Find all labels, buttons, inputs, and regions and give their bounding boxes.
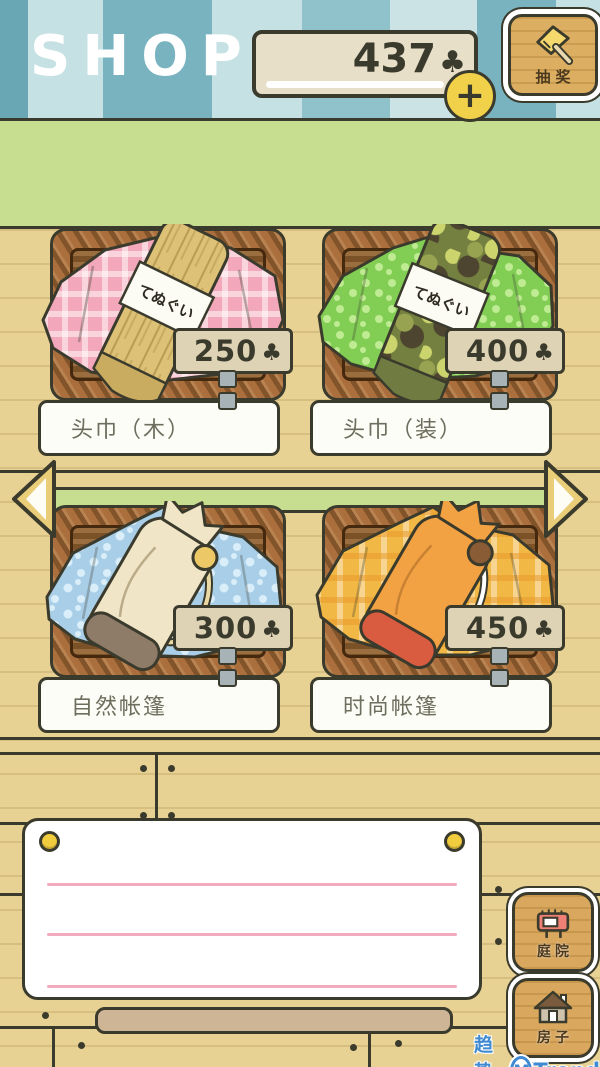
- clover-icon: ♣: [533, 342, 554, 365]
- nail-dot: [78, 1042, 85, 1049]
- watermark-site-text: 趋势网: [474, 1030, 509, 1067]
- lottery-label: 抽奖: [530, 66, 575, 87]
- nail-dot: [168, 765, 175, 772]
- watermark-brand-text: Trend: [533, 1059, 600, 1067]
- price-value: 450: [466, 614, 530, 643]
- item-name-label: 头巾（装）: [310, 400, 552, 456]
- clover-icon: ♣: [261, 619, 282, 642]
- balance-value: 437: [353, 37, 437, 81]
- price-value: 250: [194, 337, 258, 366]
- shop-item-towel-wood[interactable]: てぬぐい 250 ♣ 头巾（木）: [38, 224, 294, 456]
- mallet-icon: [529, 23, 577, 65]
- price-value: 300: [194, 614, 258, 643]
- basket: [322, 228, 558, 401]
- tag-connector: [490, 370, 509, 410]
- tag-connector: [218, 647, 237, 687]
- shop-item-natural-tent[interactable]: 300 ♣ 自然帐篷: [38, 501, 294, 733]
- plank-strip: [95, 1007, 453, 1034]
- item-name-label: 时尚帐篷: [310, 677, 552, 733]
- note-rule-line: [47, 883, 457, 886]
- lottery-button[interactable]: 抽奖: [508, 14, 598, 96]
- connector-link: [490, 669, 509, 687]
- note-rule-line: [47, 933, 457, 936]
- connector-link: [218, 370, 237, 388]
- pin-icon: [444, 831, 465, 852]
- connector-link: [218, 647, 237, 665]
- price-tag: 400 ♣: [445, 328, 565, 374]
- connector-link: [218, 669, 237, 687]
- courtyard-label: 庭院: [533, 941, 573, 961]
- balance-underline: [266, 81, 444, 88]
- shelf-edge-line: [0, 470, 600, 473]
- price-tag: 300 ♣: [173, 605, 293, 651]
- nail-dot: [140, 765, 147, 772]
- mailbox-icon: [533, 904, 573, 940]
- connector-link: [490, 370, 509, 388]
- pin-icon: [39, 831, 60, 852]
- site-watermark: 趋势网 M Trend: [474, 1030, 600, 1067]
- clover-icon: ♣: [533, 619, 554, 642]
- shop-screen: SHOP 437 ♣ + 抽奖: [0, 0, 600, 1067]
- shop-item-towel-camo[interactable]: てぬぐい 400 ♣ 头巾（装）: [310, 224, 566, 456]
- connector-link: [490, 392, 509, 410]
- connector-link: [218, 392, 237, 410]
- tag-connector: [218, 370, 237, 410]
- basket: [50, 228, 286, 401]
- watermark-logo: M: [510, 1056, 532, 1067]
- note-rule-line: [47, 985, 457, 988]
- nail-dot: [350, 1044, 357, 1051]
- add-clover-button[interactable]: +: [444, 70, 496, 122]
- price-tag: 250 ♣: [173, 328, 293, 374]
- plank-seam: [52, 1028, 55, 1067]
- item-name-label: 自然帐篷: [38, 677, 280, 733]
- plank-seam: [155, 752, 158, 822]
- clover-icon: ♣: [261, 342, 282, 365]
- price-value: 400: [466, 337, 530, 366]
- tag-connector: [490, 647, 509, 687]
- nail-dot: [495, 938, 502, 945]
- counter-line: [0, 737, 600, 740]
- connector-link: [490, 647, 509, 665]
- nail-dot: [42, 1012, 49, 1019]
- pager-prev-button[interactable]: [6, 456, 60, 542]
- house-icon: [532, 990, 574, 1026]
- wall-backdrop: [0, 121, 600, 229]
- plank-line: [0, 752, 600, 755]
- price-tag: 450 ♣: [445, 605, 565, 651]
- courtyard-button[interactable]: 庭院: [512, 892, 594, 972]
- shop-item-fashion-tent[interactable]: 450 ♣ 时尚帐篷: [310, 501, 566, 733]
- notice-board: [22, 818, 482, 1000]
- pager-next-button[interactable]: [540, 456, 594, 542]
- nail-dot: [395, 1040, 402, 1047]
- page-title: SHOP: [30, 24, 254, 89]
- basket: [322, 505, 558, 678]
- nail-dot: [495, 886, 502, 893]
- basket: [50, 505, 286, 678]
- balance-value-group: 437 ♣: [353, 37, 466, 81]
- item-name-label: 头巾（木）: [38, 400, 280, 456]
